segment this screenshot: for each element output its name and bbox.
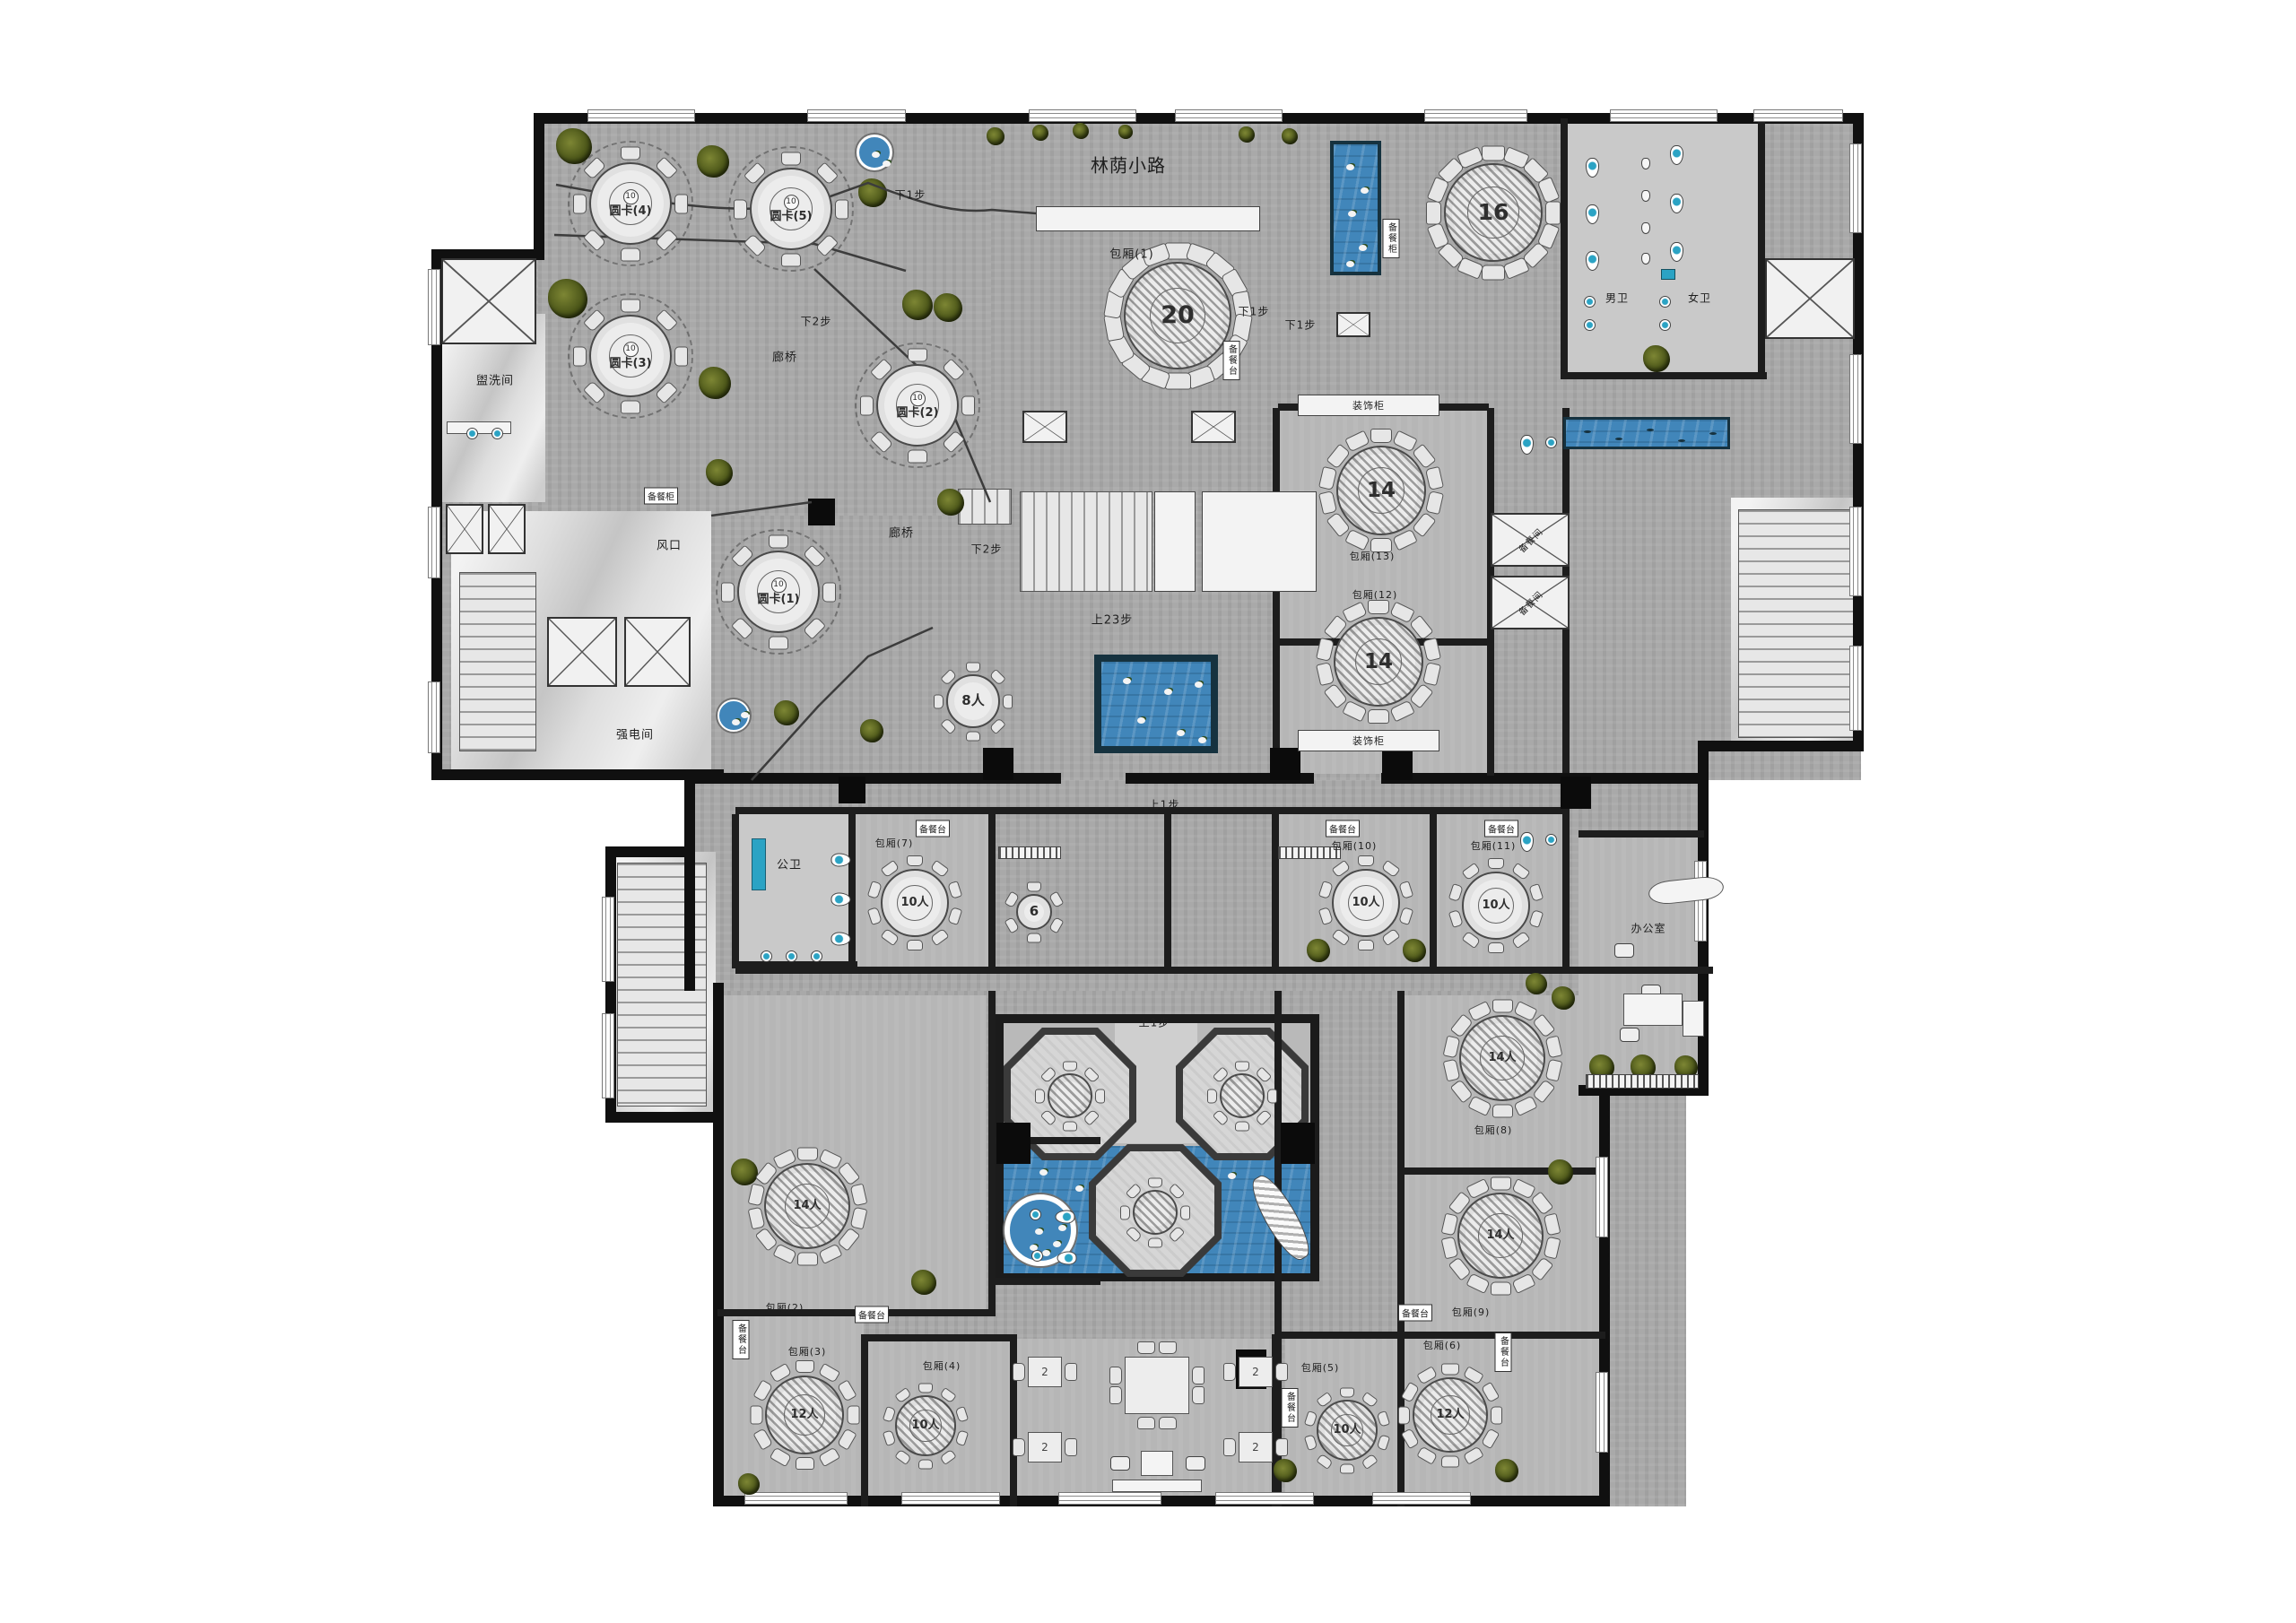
tree-icon [774,700,799,725]
duck-icon [1228,1173,1236,1179]
fish-icon [1678,439,1685,442]
partition-wall [1562,811,1570,968]
chair [1035,1089,1045,1103]
plan-label: 男卫 [1605,291,1629,306]
chair [1426,201,1441,224]
chair [1065,1438,1077,1456]
partition-wall [1758,118,1765,378]
dining-table-round: 10人 [1462,872,1530,940]
fish-icon [1584,430,1591,433]
service-counter-label: 备餐台 [1398,1305,1432,1322]
wall [1698,741,1864,751]
chair [1492,1104,1513,1117]
duck-icon [872,152,880,158]
chair [1358,855,1374,866]
dining-table-round: 10圆卡(3) [589,315,672,397]
dining-table-round: 10人 [1332,869,1400,937]
capacity-badge: 10 [623,189,639,204]
plan-label: 上1步 [1139,1015,1170,1030]
tree-icon [987,127,1004,145]
tree-icon [934,293,962,322]
table-top: 2 [1239,1432,1273,1462]
table-capacity-label: 20 [1124,303,1231,328]
plan-label: 包厢(5) [1301,1360,1340,1375]
table-capacity-label: 10人 [1462,899,1530,912]
tree-icon [1307,939,1330,962]
plan-label: 下1步 [1285,317,1317,333]
partition-wall [1010,1334,1017,1506]
dining-table-round: 12人 [1413,1377,1488,1453]
structural-column [839,777,865,803]
table-label-text: 10人 [1482,898,1509,912]
dining-table-round: 10圆卡(5) [750,168,832,250]
chair [1137,1341,1155,1354]
chair [621,247,640,261]
elevator-shaft [624,617,691,687]
table-top [1125,1357,1189,1414]
structural-column [1281,1123,1315,1164]
table-top [1220,1073,1265,1118]
wall [713,1496,1610,1506]
table-capacity-label: 8人 [946,694,1000,708]
partition-wall [1430,811,1437,968]
window [1849,143,1862,233]
toilet-fixture [1057,1252,1077,1265]
chair [1275,1438,1288,1456]
window [1694,861,1707,942]
dining-table-round: 14人 [764,1163,850,1249]
duck-icon [1053,1241,1061,1247]
slat-screen [998,846,1061,859]
dining-table-round: 10圆卡(2) [876,364,959,447]
chair [573,346,587,366]
elevator-shaft [441,258,536,344]
cabinet [1036,206,1260,231]
service-counter-label: 备餐台 [733,1320,750,1359]
chair [1109,1367,1122,1384]
partition-wall [735,967,1713,974]
dining-table-round: 14人 [1457,1193,1544,1279]
window [1596,1372,1608,1453]
sink-fixture [761,950,772,962]
window [1372,1492,1471,1505]
window [1610,109,1718,122]
chair [907,855,923,866]
table-top [1133,1190,1178,1235]
plan-label: 包厢(8) [1474,1123,1513,1137]
room-floor [722,995,987,1309]
table-label-text: 16 [1478,199,1509,225]
duck-icon [1348,211,1356,217]
chair [1180,1205,1190,1219]
sink-fixture [1030,1209,1041,1220]
chair [769,636,788,649]
table-label-text: 8人 [961,692,984,708]
chair [1109,1386,1122,1404]
chair [1027,933,1041,942]
plan-label: 包厢(13) [1350,549,1396,563]
chair [573,194,587,213]
partition-wall [1397,1167,1605,1175]
chair [781,152,801,165]
window [1849,507,1862,596]
sink-fixture [466,428,478,439]
table-capacity-label: 12人 [765,1409,844,1421]
dining-table-round: 6 [1016,894,1052,930]
water-feature [1563,417,1730,449]
sink-fixture [1031,1250,1043,1262]
plan-label: 包厢(4) [923,1358,961,1373]
dining-table-round: 8人 [946,674,1000,728]
chair [1275,1363,1288,1381]
elevator-shaft [446,504,483,554]
duck-icon [883,161,891,167]
chair [1491,1176,1511,1190]
chair [822,582,836,602]
structural-column [1270,748,1300,780]
elevator-shaft [1765,258,1855,339]
structural-column [808,499,835,525]
dining-table-round: 14 [1334,617,1423,707]
urinal-fixture [1641,158,1650,169]
duck-icon [1177,730,1185,736]
table-capacity-label: 10圆卡(3) [589,342,672,370]
chair [1192,1367,1205,1384]
service-counter-label: 备餐台 [1495,1332,1512,1372]
room-floor [1578,834,1698,1087]
window [602,1013,614,1098]
table-label-text: 14 [1364,650,1393,673]
table-capacity-label: 10圆卡(4) [589,189,672,218]
chair [1340,1387,1354,1397]
table-capacity-label: 14 [1334,651,1423,673]
restaurant-floor-plan: 10圆卡(4)10圆卡(5)10圆卡(3)10圆卡(2)10圆卡(1)8人201… [0,0,2296,1623]
tree-icon [1118,125,1133,139]
tree-icon [1548,1159,1573,1185]
tree-icon [548,279,587,318]
chair [1148,1237,1162,1247]
chair [1358,940,1374,950]
chair [1065,1363,1077,1381]
chair [934,694,944,708]
duck-icon [1359,245,1367,251]
tree-icon [706,459,733,486]
window [1849,354,1862,444]
table-capacity-label: 10人 [881,897,949,909]
plan-label: 包厢(10) [1332,838,1378,853]
plan-label: 装饰柜 [1352,733,1385,748]
counter-fixture [1623,994,1683,1026]
chair [1620,1028,1639,1042]
service-counter-label: 备餐台 [855,1306,889,1324]
plan-label: 包厢(11) [1471,838,1517,853]
dining-table-round: 10圆卡(1) [737,551,820,633]
chair [1340,1463,1354,1473]
structural-column [1561,777,1591,809]
partition-wall [1561,372,1767,379]
chair [1235,1121,1249,1131]
tree-icon [1552,986,1575,1010]
plan-label: 下2步 [801,314,832,329]
chair [961,395,975,415]
sink-fixture [491,428,503,439]
urinal-fixture [1641,253,1650,265]
dining-table-square: 2 [1028,1357,1062,1387]
dining-table-round: 16 [1444,163,1543,262]
chair [1223,1438,1236,1456]
wall [534,113,544,260]
chair [1368,600,1389,614]
tree-icon [902,290,933,320]
plan-label: 包厢(7) [875,836,914,850]
chair [966,662,980,672]
plan-label: 包厢(6) [1423,1338,1462,1352]
plan-label: 林荫小路 [1091,152,1166,178]
tree-icon [1073,123,1089,139]
plan-label: 公卫 [777,855,802,872]
sink-fixture [1659,296,1671,308]
sink-fixture [1659,319,1671,331]
window [1753,109,1843,122]
table-label-text: 10人 [900,896,928,909]
round-pond [717,699,750,732]
plan-label: 廊桥 [889,524,914,541]
chair [860,395,874,415]
chair [1370,429,1392,443]
chair [1063,1121,1077,1131]
service-counter-label: 备餐台 [916,820,950,838]
chair [781,253,801,266]
elevator-shaft [1022,411,1067,443]
counter-fixture [1112,1480,1202,1492]
tree-icon [937,489,964,516]
duck-icon [741,712,749,718]
table-label-text: 10人 [1333,1423,1361,1436]
basin-fixture [752,838,766,890]
partition-wall [988,811,996,968]
table-label-text: 14人 [793,1199,821,1212]
chair [674,346,688,366]
table-top: 2 [1028,1357,1062,1387]
window [602,897,614,982]
duck-icon [1042,1250,1050,1256]
chair [1148,1177,1162,1187]
tree-icon [697,145,729,178]
table-capacity-label: 10圆卡(1) [737,577,820,606]
window [1058,1492,1161,1505]
elevator-shaft [1191,411,1236,443]
plan-label: 装饰柜 [1352,398,1385,412]
chair [1095,1089,1105,1103]
dining-table-round [1133,1190,1178,1235]
structural-column [996,1123,1031,1164]
round-pond [857,135,892,170]
duck-icon [1346,261,1354,267]
partition-wall [1561,118,1568,378]
chair [797,1252,818,1265]
table-label-text: 14人 [1488,1051,1516,1064]
dining-table-round: 10圆卡(4) [589,162,672,245]
chair [1491,1406,1502,1424]
staircase [459,572,536,751]
chair [621,400,640,413]
window [1424,109,1527,122]
window [807,109,906,122]
urinal-fixture [1641,190,1650,202]
chair [1223,1363,1236,1381]
sink-fixture [1545,437,1557,448]
chair [1492,999,1513,1012]
duck-icon [1035,1228,1043,1235]
plan-label: 包厢(9) [1452,1305,1491,1319]
table-label-text: 10人 [911,1419,939,1432]
chair [835,199,848,219]
chair [1482,265,1505,280]
duck-icon [732,719,740,725]
chair [721,582,735,602]
table-capacity-label: 6 [1016,905,1052,919]
plan-label: 下1步 [1239,304,1270,319]
table-capacity-label: 10圆卡(5) [750,195,832,223]
partition-wall [861,1334,1013,1341]
chair [750,1406,762,1425]
plan-label: 盥洗间 [476,371,514,388]
dining-table-round: 10人 [881,869,949,937]
service-counter-label: 备餐台 [1326,820,1360,838]
tree-icon [731,1159,758,1185]
plan-label: 下2步 [971,542,1003,557]
sink-fixture [1584,296,1596,308]
fish-icon [1647,429,1654,431]
window [1029,109,1136,122]
window [428,681,440,753]
table-label-text: 14人 [1486,1228,1514,1242]
structural-column [983,748,1013,780]
plan-label: 上1步 [1149,797,1180,812]
capacity-badge: 10 [784,195,799,210]
plan-label: 廊桥 [772,348,797,365]
cabinet [1154,491,1196,592]
service-counter-label: 备餐柜 [644,488,678,505]
partition-wall [1397,991,1405,1336]
chair [908,348,927,361]
chair [621,146,640,160]
table-label-text: 圆卡(1) [758,593,800,606]
table-capacity-label: 10圆卡(2) [876,391,959,420]
duck-icon [1075,1185,1083,1192]
chair [847,1406,859,1425]
tree-icon [1643,345,1670,372]
chair [1491,1281,1511,1295]
chair [1027,881,1041,891]
partition-wall [988,991,996,1314]
chair [1003,694,1013,708]
chair [1482,145,1505,161]
dining-table-round: 12人 [765,1376,844,1454]
duck-icon [1164,689,1172,695]
elevator-shaft [547,617,617,687]
window [1175,109,1283,122]
chair [1192,1386,1205,1404]
window [587,109,695,122]
tree-icon [1526,973,1547,994]
staircase [958,489,1012,525]
chair [1614,943,1634,958]
window [1215,1492,1314,1505]
table-top [1048,1073,1092,1118]
chair [1110,1456,1130,1471]
partition-wall [848,811,856,968]
chair [1063,1061,1077,1071]
chair [1235,1061,1249,1071]
water-feature [1094,655,1218,753]
capacity-badge: 10 [771,577,787,593]
wall [605,1112,724,1123]
slat-screen [1586,1074,1699,1089]
dining-table-square: 2 [1028,1432,1062,1462]
chair [1545,201,1561,224]
tree-icon [911,1270,936,1295]
table-label-text: 6 [1030,903,1039,919]
partition-wall [732,961,857,968]
tree-icon [1274,1459,1297,1482]
tree-icon [1403,939,1426,962]
table-label-text: 12人 [1436,1408,1464,1421]
table-capacity-label: 10人 [1332,897,1400,909]
duck-icon [1039,1169,1048,1176]
tree-icon [738,1473,760,1495]
dining-table-round [1220,1073,1265,1118]
dining-table-round: 10人 [1317,1400,1378,1461]
chair [621,299,640,312]
plan-label: 包厢(1) [1109,245,1153,262]
counter-fixture [1141,1451,1173,1476]
dining-table-round: 14人 [1459,1015,1545,1101]
tree-icon [1032,125,1048,141]
duck-icon [1058,1225,1066,1231]
water-feature [1330,141,1381,275]
service-counter-label: 备餐台 [1282,1388,1299,1428]
chair [918,1459,933,1469]
chair [907,940,923,950]
wall [684,773,695,991]
dining-table-round: 10人 [895,1395,956,1456]
chair [1137,1417,1155,1429]
table-top: 2 [1239,1357,1273,1387]
partition-wall [1272,1334,1279,1506]
table-capacity-label: 12人 [1413,1409,1488,1421]
tree-icon [699,367,731,399]
structural-column [1382,748,1413,780]
chair [769,534,788,548]
table-capacity-label: 14人 [1459,1052,1545,1064]
elevator-shaft [488,504,526,554]
fish-icon [1615,438,1622,440]
plan-label: 包厢(3) [788,1344,827,1358]
staircase [1738,509,1855,738]
chair [1267,1089,1277,1103]
chair [734,199,747,219]
sink-fixture [1545,834,1557,846]
fish-icon [1709,432,1717,435]
table-label-text: 圆卡(4) [610,204,652,218]
service-counter-label: 备餐柜 [1383,219,1400,258]
tree-icon [1282,128,1298,144]
partition-wall [1273,408,1280,776]
partition-wall [988,1278,1100,1285]
elevator-shaft [1336,312,1370,337]
capacity-badge: 10 [623,342,639,357]
